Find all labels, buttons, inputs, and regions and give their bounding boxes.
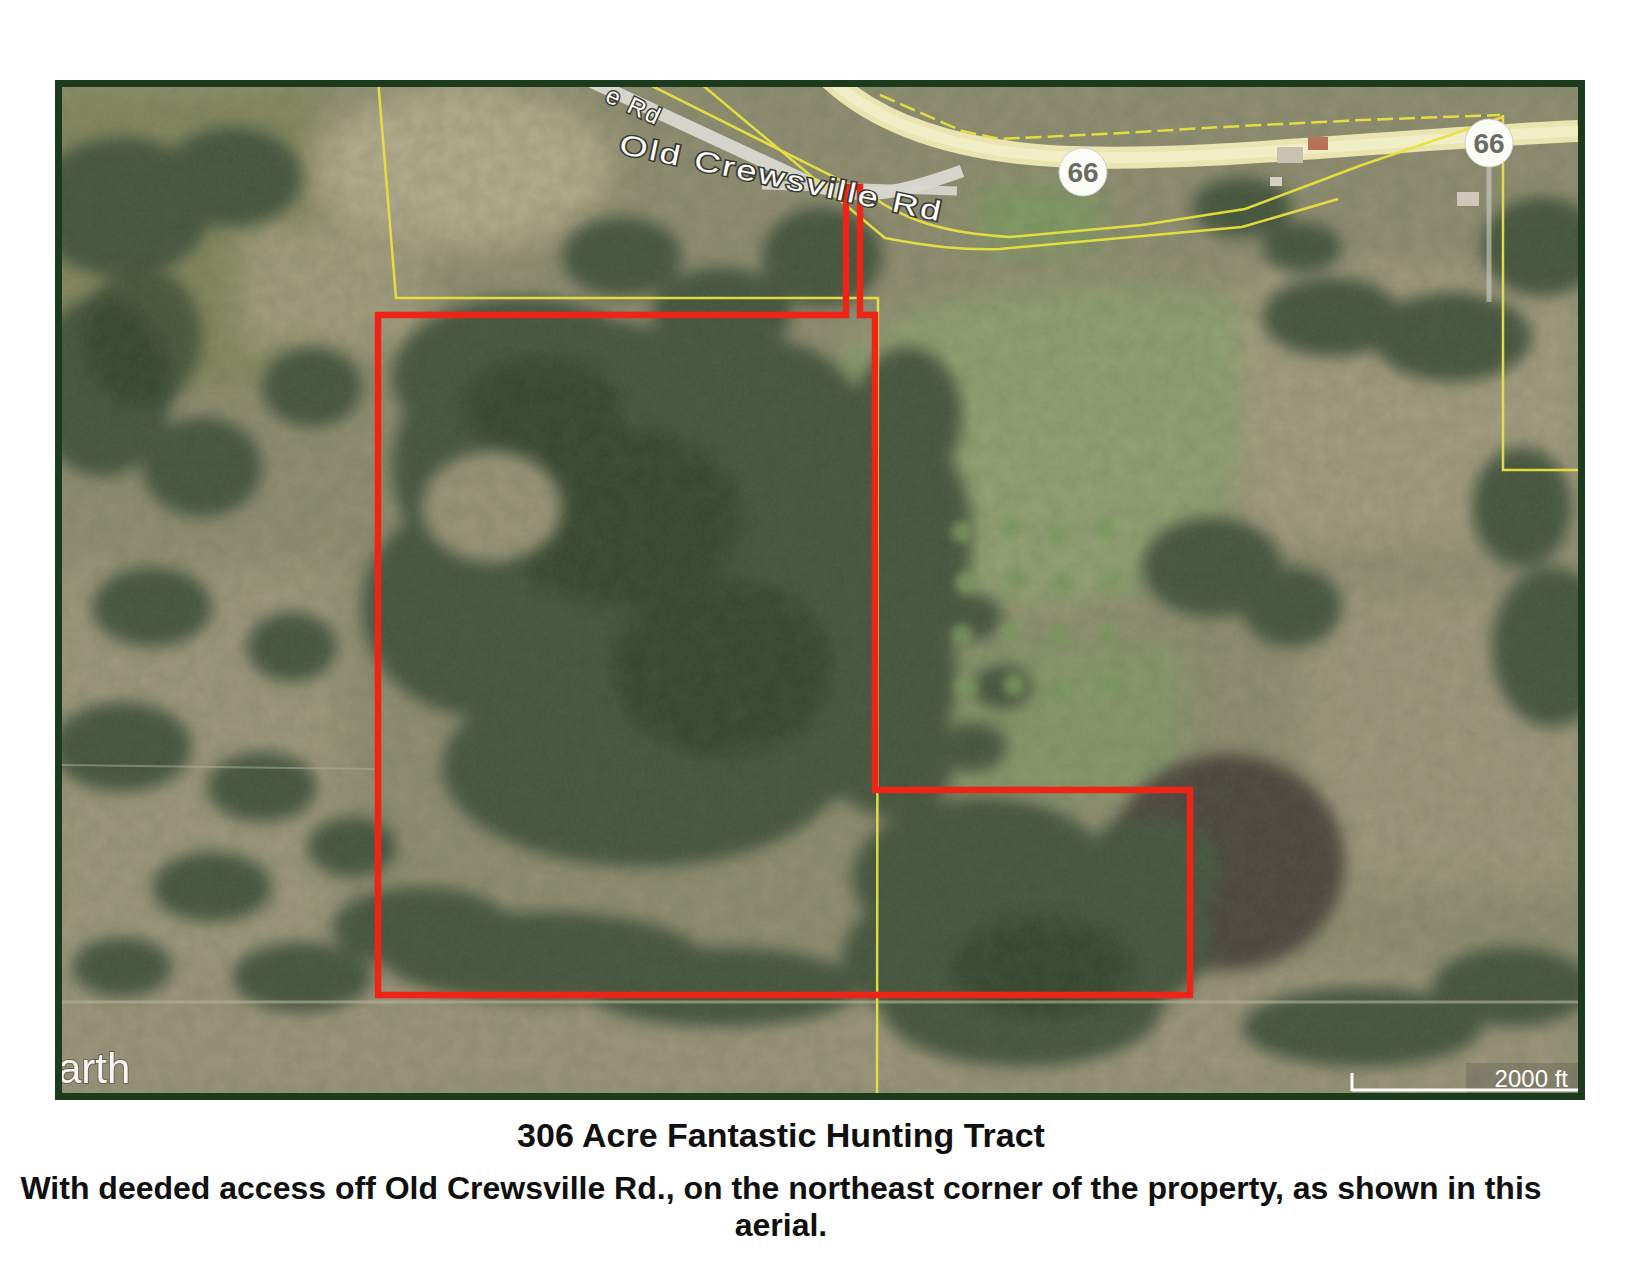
scale-label: 2000 ft: [1495, 1065, 1569, 1092]
aerial-map-canvas: 66 66 Old Crewsville Rd e Rd arth 2000 f…: [62, 87, 1578, 1093]
route-shield-label: 66: [1473, 128, 1504, 159]
earth-watermark: arth: [62, 1045, 130, 1092]
aerial-map: 66 66 Old Crewsville Rd e Rd arth 2000 f…: [55, 80, 1585, 1100]
caption-subtitle: With deeded access off Old Crewsville Rd…: [0, 1170, 1562, 1244]
terrain-fine-grain: [62, 87, 1578, 1093]
flyer-page: 66 66 Old Crewsville Rd e Rd arth 2000 f…: [0, 0, 1650, 1275]
caption-title: 306 Acre Fantastic Hunting Tract: [0, 1116, 1562, 1155]
route-shield-label: 66: [1067, 157, 1098, 188]
route-shield-west: 66: [1059, 148, 1107, 196]
